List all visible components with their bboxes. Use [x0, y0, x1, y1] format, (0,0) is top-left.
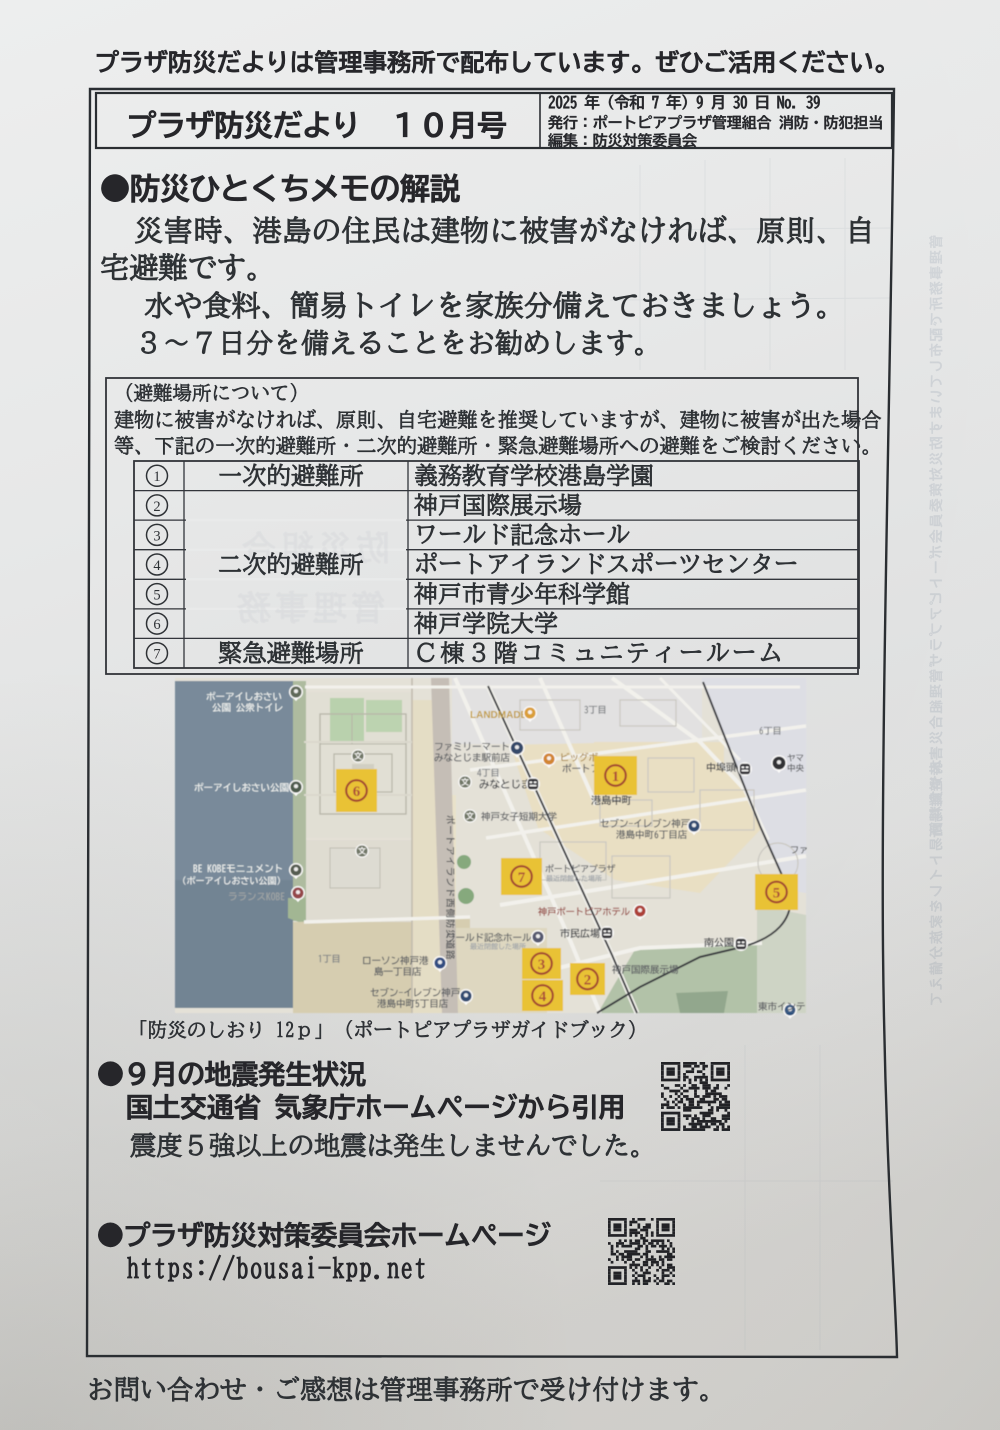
svg-text:4: 4	[153, 558, 161, 574]
svg-text:6: 6	[153, 617, 160, 633]
svg-text:2: 2	[153, 499, 160, 515]
svg-text:7: 7	[153, 647, 160, 663]
svg-text:3: 3	[153, 528, 160, 544]
svg-text:1: 1	[153, 469, 160, 485]
svg-text:5: 5	[153, 588, 160, 604]
